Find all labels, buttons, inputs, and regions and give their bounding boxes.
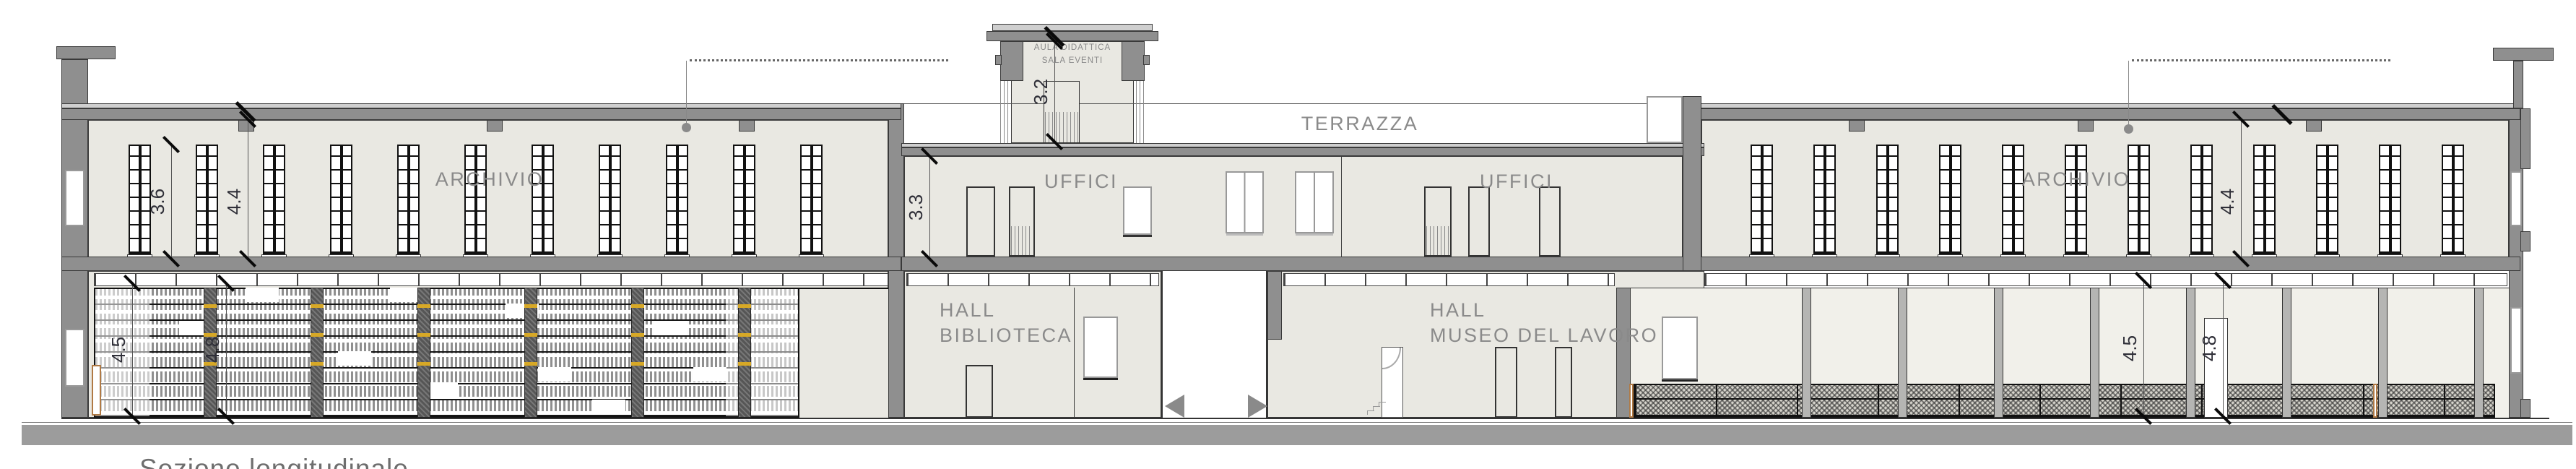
shelf-plinth [127,254,152,257]
stair-step [1373,406,1380,410]
dimension-line [248,119,248,259]
shelf-plinth [396,254,421,257]
right-end-upstand [2513,61,2523,108]
dimension-value: 3.2 [1031,69,1051,115]
label-aula-didattica: AULA DIDATTICA [1034,43,1111,52]
shelf-unit [464,145,487,254]
uffici-door [1539,186,1561,257]
ceiling-tick-strip-biblioteca [906,273,1159,286]
dotted-reference-line-left [690,59,948,61]
museo-door [1555,347,1572,418]
tower-rail-left [1000,81,1009,143]
label-hall-museo-2: MUSEO DEL LAVORO [1430,324,1658,347]
leader-dot-right [2124,124,2133,134]
loggia-column [2282,288,2291,418]
roof-beam-notch [1849,120,1865,132]
shelf-plinth [2126,254,2151,257]
stacks-gap [246,288,279,302]
stair-step [1379,402,1386,406]
loggia-column [2474,288,2484,418]
shelf-unit [2065,145,2087,254]
column-accent-yellow [631,362,644,366]
label-hall-biblioteca-2: BIBLIOTECA [940,324,1072,347]
roof-beam-notch [487,120,503,132]
column-accent-yellow [631,304,644,308]
column-accent-yellow [738,333,751,337]
right-end-flare [2520,108,2531,169]
dimension-value: 4.4 [2217,178,2237,225]
label-uffici-left: UFFICI [1044,171,1118,193]
terrace-window [1295,171,1334,233]
column-accent-yellow [311,304,324,308]
museo-door [1495,347,1517,418]
right-roof-slab [1683,108,2520,120]
column-accent-yellow [524,362,537,366]
left-end-cap [56,46,116,59]
shelf-plinth [799,254,824,257]
column-accent-yellow [524,333,537,337]
dimension-line [226,283,227,416]
right-end-window-upper [2510,171,2522,226]
shelf-unit [1876,145,1899,254]
uffici-door [1468,186,1490,257]
shelf-unit [2002,145,2024,254]
dimension-value: 4.8 [2199,325,2219,371]
stacks-gap [654,321,687,335]
loggia-column [1802,288,1811,418]
stacks-fade-right [726,289,798,416]
shelf-plinth [2252,254,2277,257]
label-archivio-left: ARCHIVIO [435,168,545,191]
ceiling-tick-strip-loggia [1704,273,2507,286]
left-end-window-lower [65,329,84,387]
dimension-line [132,283,133,416]
drawing-caption: Sezione longitudinale [139,454,409,469]
label-sala-eventi: SALA EVENTI [1042,56,1103,65]
shelf-unit [2253,145,2276,254]
tower-pillar-left [1000,41,1023,81]
shelf-unit [2128,145,2150,254]
column-accent-yellow [524,304,537,308]
leader-line-right [2128,61,2129,127]
shelf-plinth [597,254,623,257]
stair-step [1367,410,1374,415]
ceiling-tick-strip-museo [1283,273,1615,286]
column-accent-yellow [738,362,751,366]
tower-coping [992,24,1153,31]
label-terrazza: TERRAZZA [1301,113,1419,135]
dimension-value: 4.5 [108,327,129,373]
shelf-unit [532,145,554,254]
terrace-parapet-line [901,103,1704,104]
loggia-column [2090,288,2099,418]
shelf-plinth [530,254,555,257]
stacks-gap [538,367,571,382]
dimension-line [2241,119,2242,259]
balcony-door-railing [1426,226,1449,255]
column-accent-yellow [631,333,644,337]
dotted-reference-line-right [2132,59,2390,61]
left-floor-slab [61,257,901,271]
shelf-plinth [261,254,287,257]
biblioteca-door [966,365,993,418]
shelf-plinth [732,254,757,257]
shelf-plinth [2000,254,2026,257]
column-accent-yellow [311,362,324,366]
roof-beam-notch [739,120,755,132]
loggia-column [2186,288,2195,418]
uffici-partition-line [1341,156,1342,257]
dimension-line [171,145,172,259]
shelf-plinth [1875,254,1900,257]
label-hall-biblioteca-1: HALL [940,299,996,322]
column-accent-yellow [204,304,217,308]
dimension-line [2223,280,2224,416]
shelf-unit [2379,145,2401,254]
shelf-plinth [2315,254,2340,257]
right-floor-slab [1683,257,2520,271]
tower-tab-left [995,55,1002,65]
stacks-gap [592,400,625,414]
loggia-column [2378,288,2388,418]
shelf-unit [599,145,621,254]
shelf-unit [2316,145,2338,254]
arrow-right-icon [1248,395,1267,418]
shelf-plinth [664,254,690,257]
stacks-wood-door [92,365,101,416]
tower-tab-right [1143,55,1150,65]
building-base-line [61,418,2549,419]
stacks-gap [338,351,371,366]
center-floor-slab [901,257,1704,271]
left-end-window-upper [65,170,84,226]
leader-line-left [686,61,687,127]
terrace-window [1226,171,1264,233]
shelf-unit [2442,145,2464,254]
tower-pillar-right [1122,41,1145,81]
loggia-column [1898,288,1907,418]
left-roof-slab [61,108,901,120]
uffici-sash-window [1123,186,1152,235]
right-end-flare [2520,231,2531,251]
ceiling-tick-strip-left [94,273,888,286]
stacks-end-wall [798,288,888,418]
shelf-unit [263,145,285,254]
balcony-door-railing [1011,226,1033,255]
shelf-unit [1939,145,1961,254]
column-accent-yellow [311,333,324,337]
shelf-unit [2190,145,2213,254]
building-section-drawing: ARCHIVIO ARCHIVIO UFFICI UFFICI TERRAZZA… [0,0,2576,469]
roof-beam-notch [2306,120,2322,132]
dimension-value: 4.4 [224,178,244,225]
ground-band [22,425,2572,445]
dimension-line [1054,41,1055,142]
right-roof-coping [1683,103,2520,108]
right-end-cap [2493,48,2554,61]
right-end-window-lower [2510,307,2522,374]
terrace-slab [901,147,1704,156]
shelf-plinth [1812,254,1837,257]
shelf-unit [800,145,823,254]
label-archivio-right: ARCHIVIO [2022,168,2131,191]
roof-beam-notch [2078,120,2094,132]
shelf-plinth [2063,254,2089,257]
column-accent-yellow [417,333,430,337]
museo-window [1662,317,1698,379]
leader-dot-left [682,123,691,132]
parapet-wood-edge [1629,384,1634,418]
shelf-unit [397,145,420,254]
uffici-door [966,186,995,257]
shelf-plinth [329,254,354,257]
shelf-unit [733,145,755,254]
dimension-value: 3.3 [906,184,926,231]
dimension-value: 4.5 [2120,325,2140,371]
column-accent-yellow [417,304,430,308]
biblioteca-partition-line [1074,288,1075,418]
dimension-value: 3.6 [147,178,168,225]
dimension-line [929,156,930,259]
loggia-hatched-parapet [1634,384,2495,418]
ground-line [22,422,2572,423]
biblioteca-window [1083,317,1118,378]
dimension-line [2143,280,2144,416]
tower-rail-right [1136,81,1145,143]
arrow-left-icon [1165,395,1184,418]
label-uffici-right: UFFICI [1480,171,1553,193]
stacks-gap [693,367,727,382]
shelf-unit [1751,145,1773,254]
shelf-plinth [463,254,488,257]
shelf-unit [1813,145,1836,254]
shelf-unit [196,145,218,254]
shelf-plinth [194,254,220,257]
passage-pier [1267,271,1282,340]
museo-right-wall [1616,288,1631,418]
shelf-plinth [1938,254,1963,257]
shelf-plinth [1749,254,1774,257]
junction-window [1647,96,1683,143]
left-roof-coping [61,103,901,108]
shelf-plinth [2440,254,2466,257]
label-hall-museo-1: HALL [1430,299,1486,322]
shelf-unit [330,145,352,254]
tower-cap-band [986,31,1158,41]
column-accent-yellow [738,304,751,308]
parapet-wood-edge [2373,384,2377,418]
junction-wall [1683,96,1701,271]
shelf-unit [666,145,688,254]
right-end-flare [2520,399,2531,418]
dimension-value: 4.8 [202,327,222,373]
shelf-plinth [2377,254,2403,257]
column-accent-yellow [417,362,430,366]
shelf-plinth [2189,254,2214,257]
loggia-column [1994,288,2003,418]
